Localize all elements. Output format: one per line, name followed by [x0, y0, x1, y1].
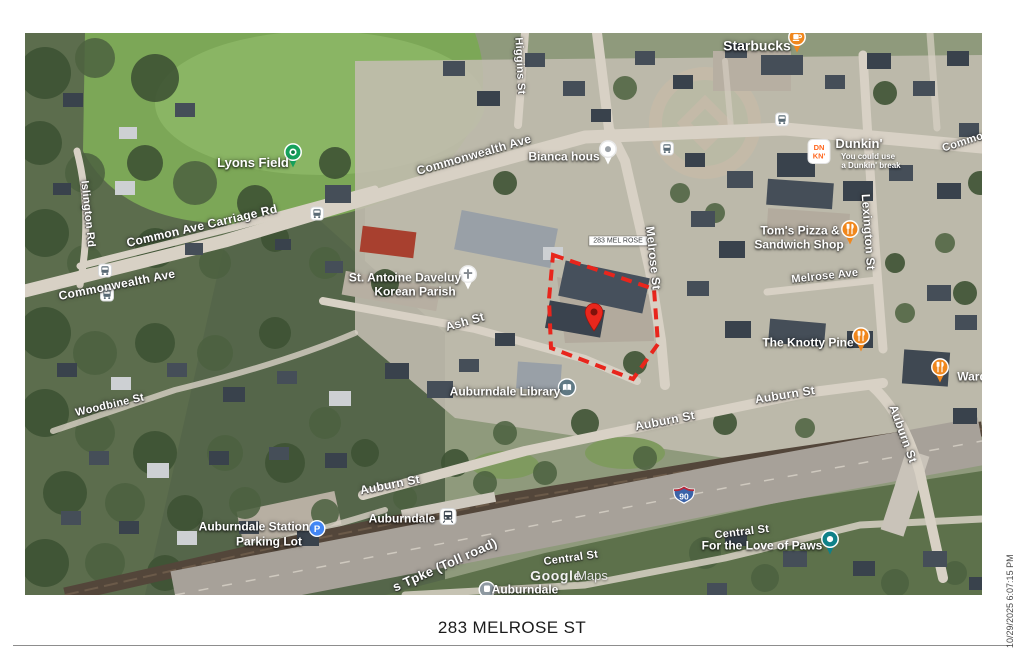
photo-caption: 283 MELROSE ST	[0, 618, 1024, 638]
screenshot-page: DNKN'P90 StarbucksCommoDunkin'You could …	[0, 0, 1024, 663]
satellite-imagery	[25, 33, 982, 595]
photo-timestamp: 10/29/2025 6:07:15 PM	[1005, 553, 1015, 648]
caption-divider	[13, 645, 1010, 646]
map-image: DNKN'P90 StarbucksCommoDunkin'You could …	[25, 33, 982, 595]
